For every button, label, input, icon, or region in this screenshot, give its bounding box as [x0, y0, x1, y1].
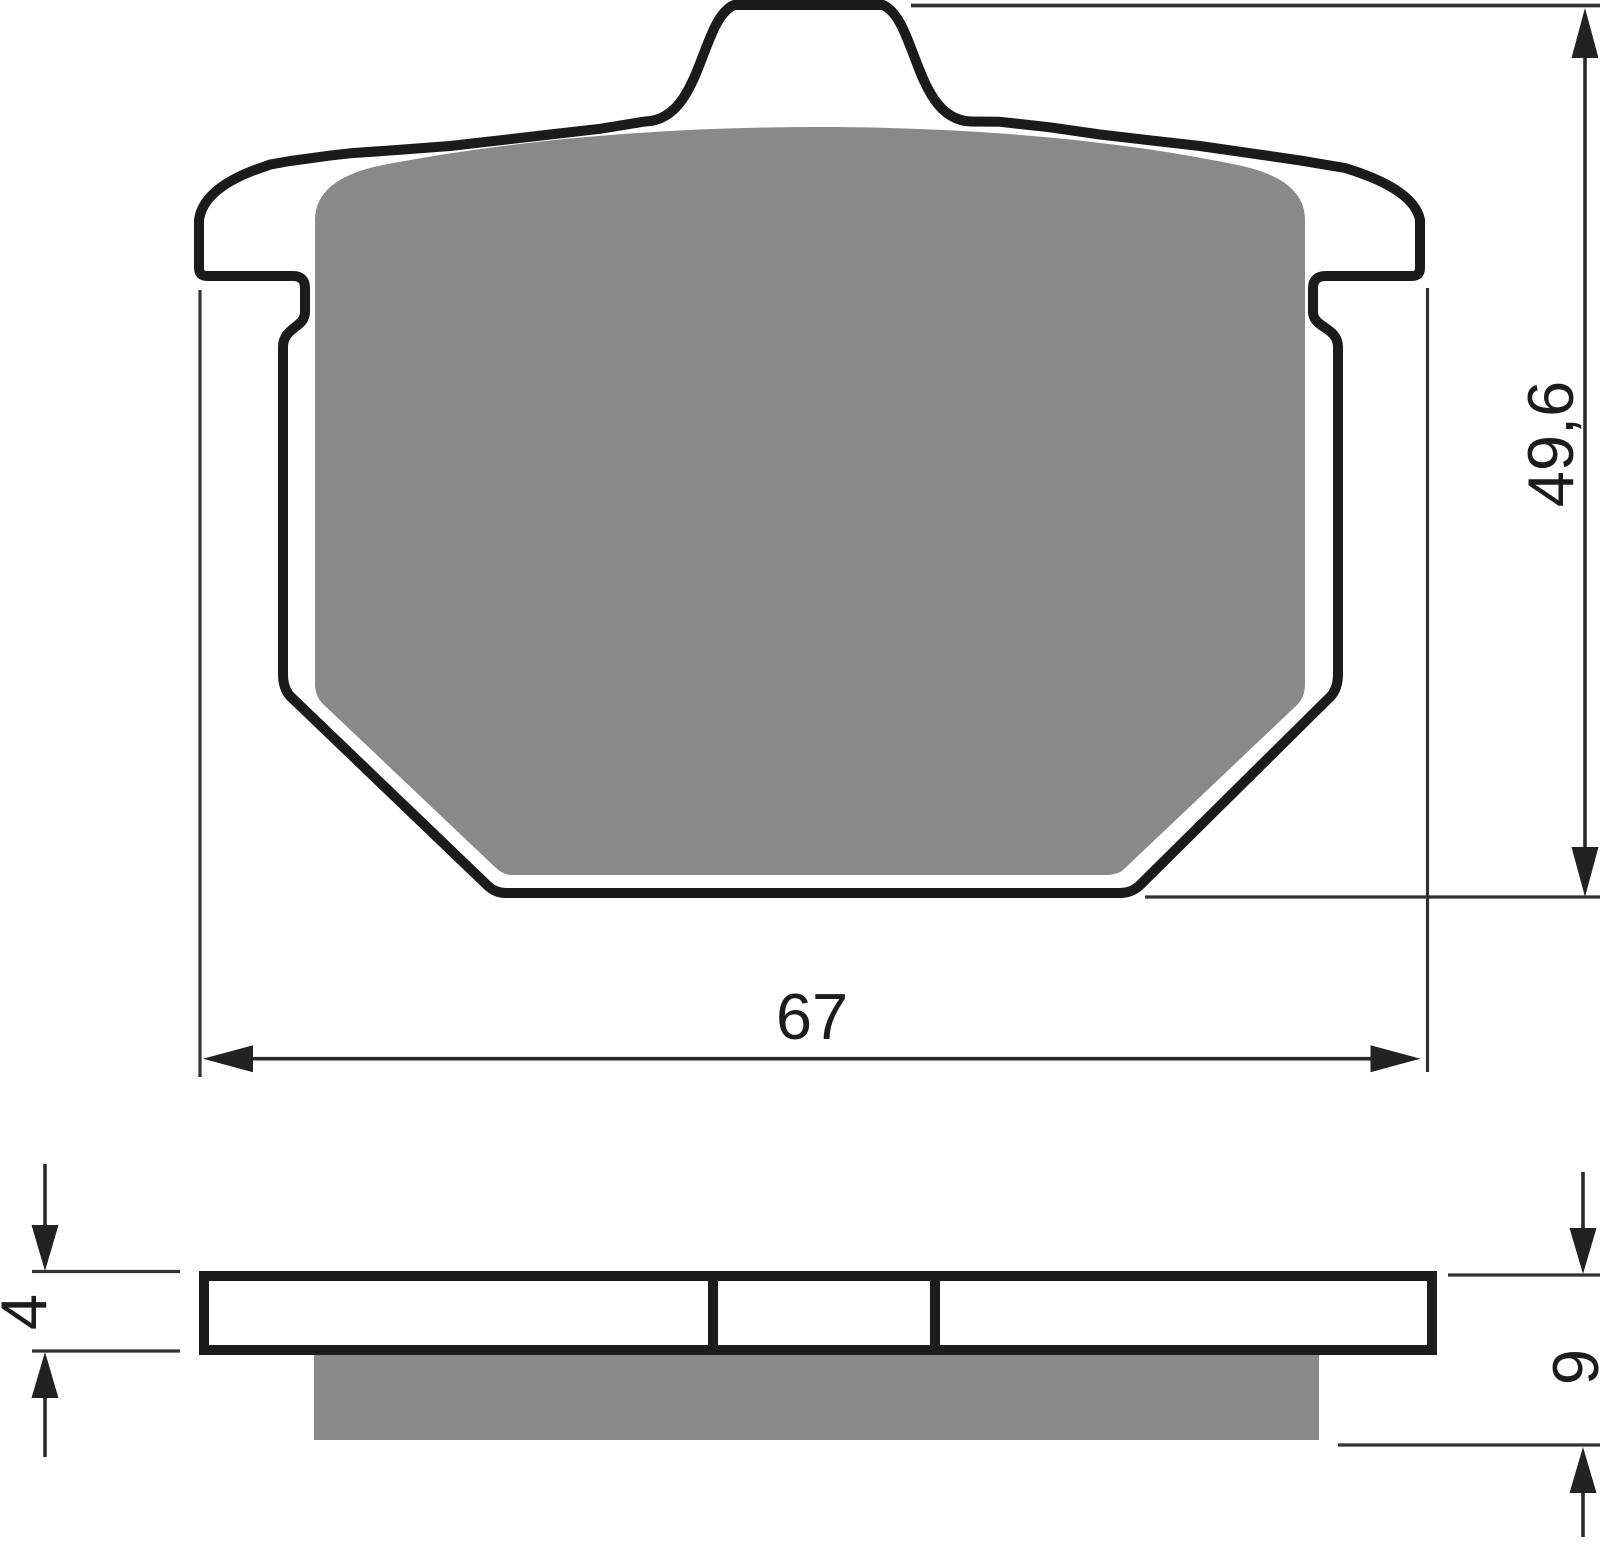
svg-text:9: 9: [1539, 1349, 1600, 1385]
svg-text:67: 67: [776, 980, 848, 1053]
svg-text:4: 4: [0, 1294, 60, 1330]
svg-text:49,6: 49,6: [1514, 381, 1587, 508]
